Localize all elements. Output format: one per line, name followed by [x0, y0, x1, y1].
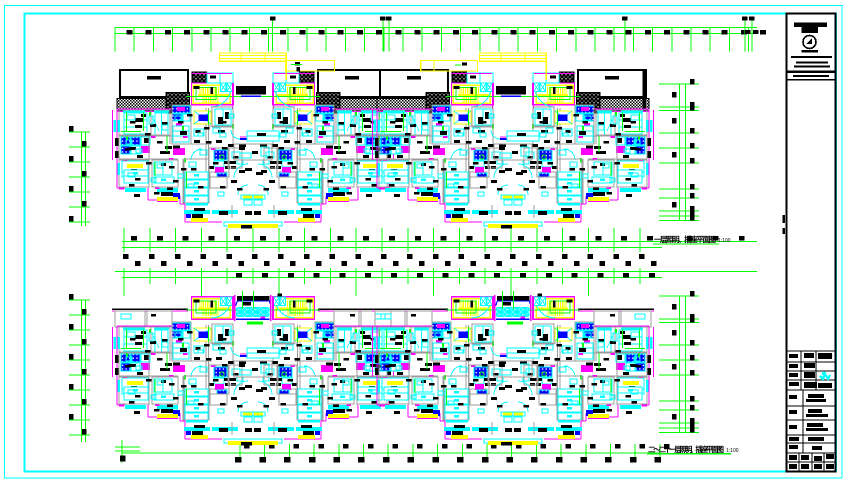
svg-text:二～二十一层照明、插座平面图: 二～二十一层照明、插座平面图 — [648, 444, 725, 454]
svg-text:1:100: 1:100 — [726, 448, 739, 454]
svg-text:一层照明、插座平面图: 一层照明、插座平面图 — [654, 234, 717, 244]
svg-text:1:100: 1:100 — [718, 238, 731, 244]
